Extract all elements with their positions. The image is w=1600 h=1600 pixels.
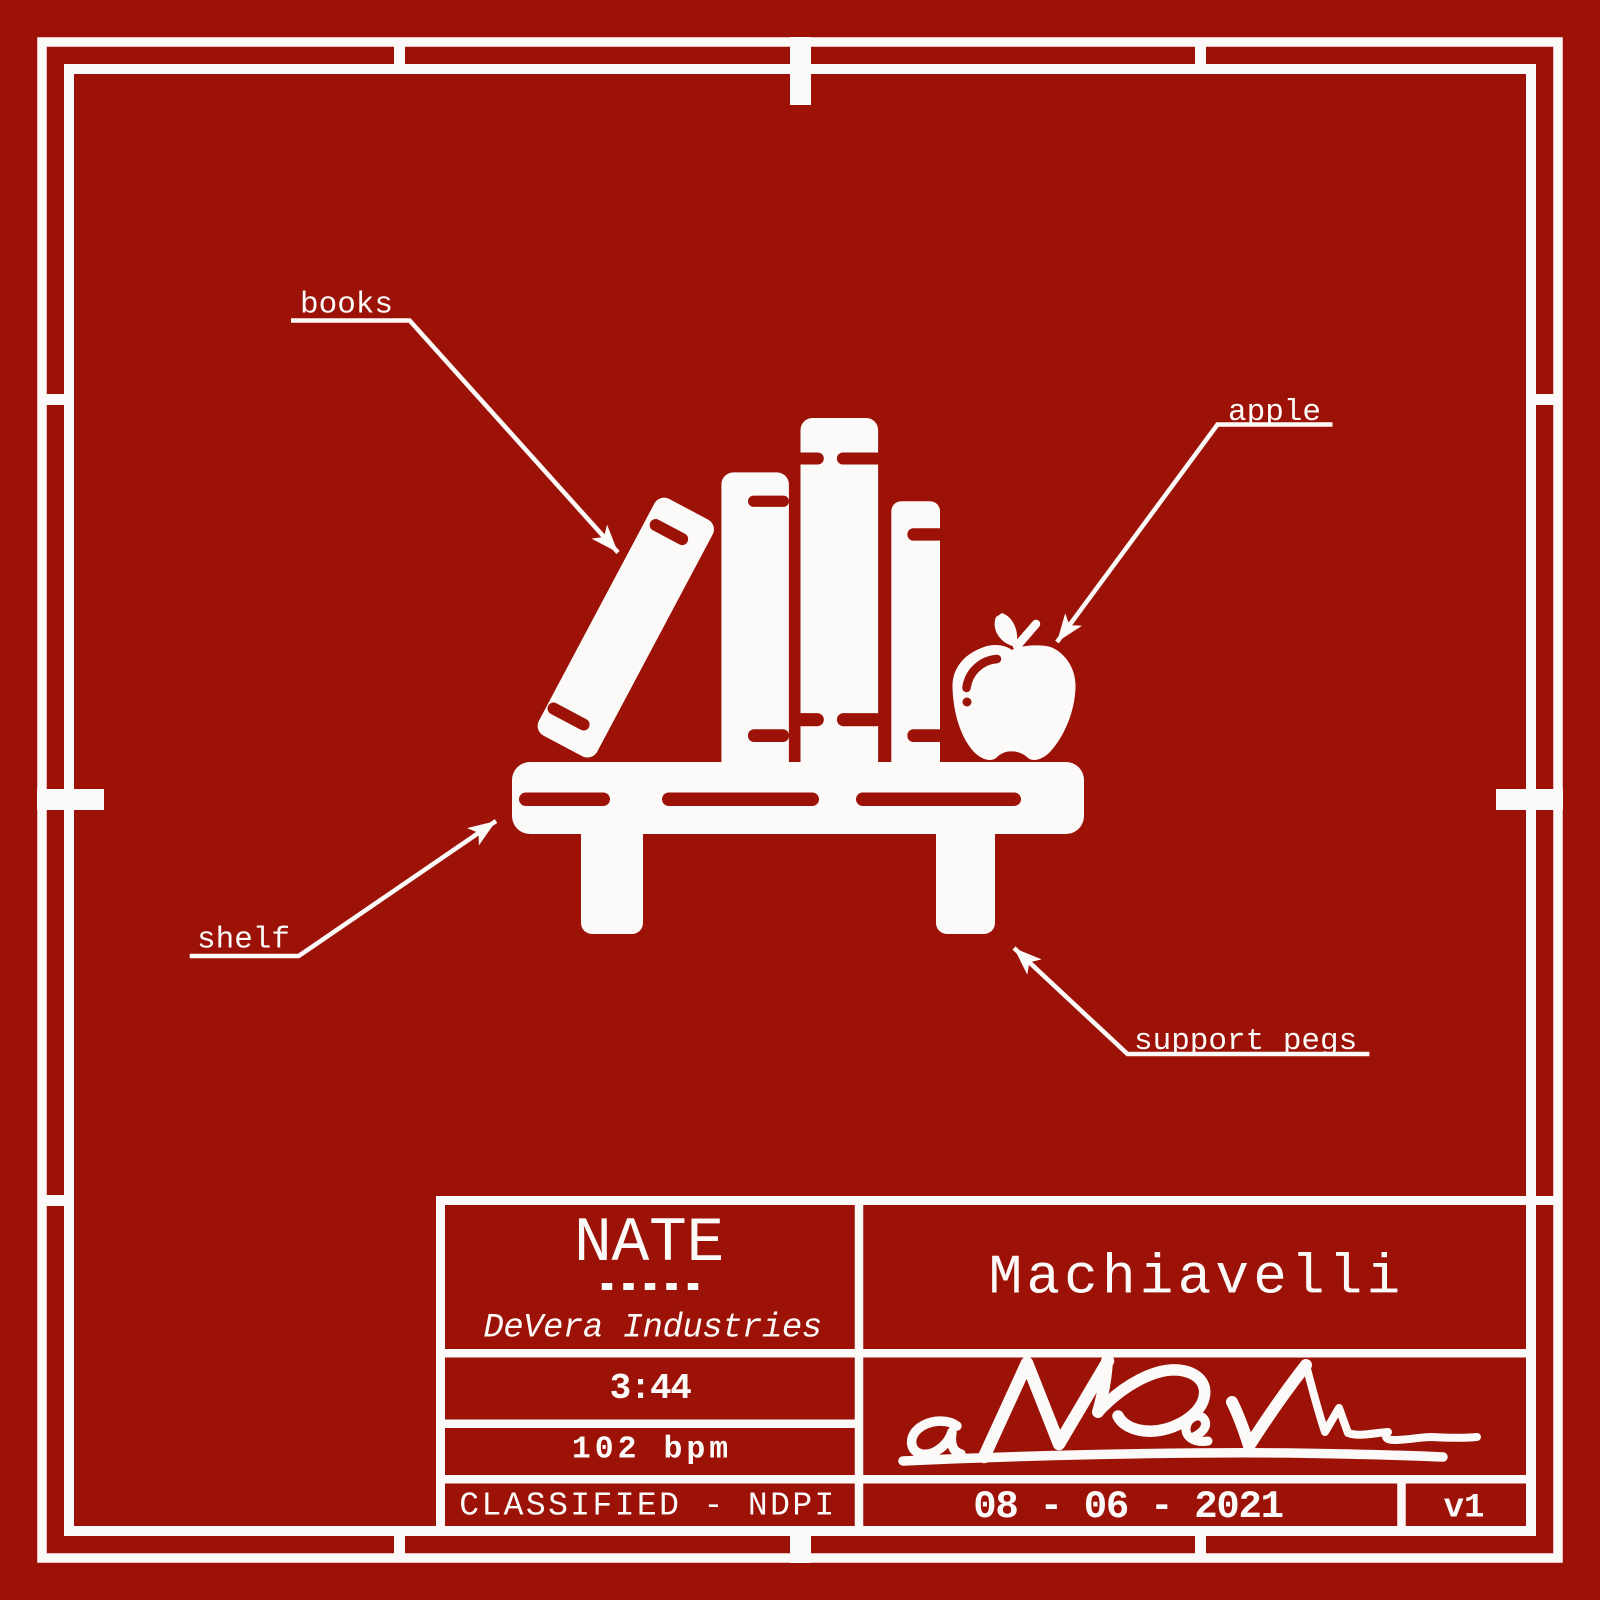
svg-text:v1: v1 xyxy=(1444,1490,1485,1528)
svg-text:102 bpm: 102 bpm xyxy=(572,1433,732,1468)
svg-text:Machiavelli: Machiavelli xyxy=(989,1246,1405,1310)
svg-text:NATE: NATE xyxy=(574,1208,724,1279)
svg-text:CLASSIFIED - NDPI: CLASSIFIED - NDPI xyxy=(459,1488,836,1525)
svg-text:DeVera Industries: DeVera Industries xyxy=(483,1310,821,1348)
svg-text:08 - 06 - 2021: 08 - 06 - 2021 xyxy=(973,1485,1282,1529)
svg-text:3:44: 3:44 xyxy=(610,1368,692,1409)
svg-text:shelf: shelf xyxy=(197,923,290,958)
svg-text:books: books xyxy=(300,288,393,323)
